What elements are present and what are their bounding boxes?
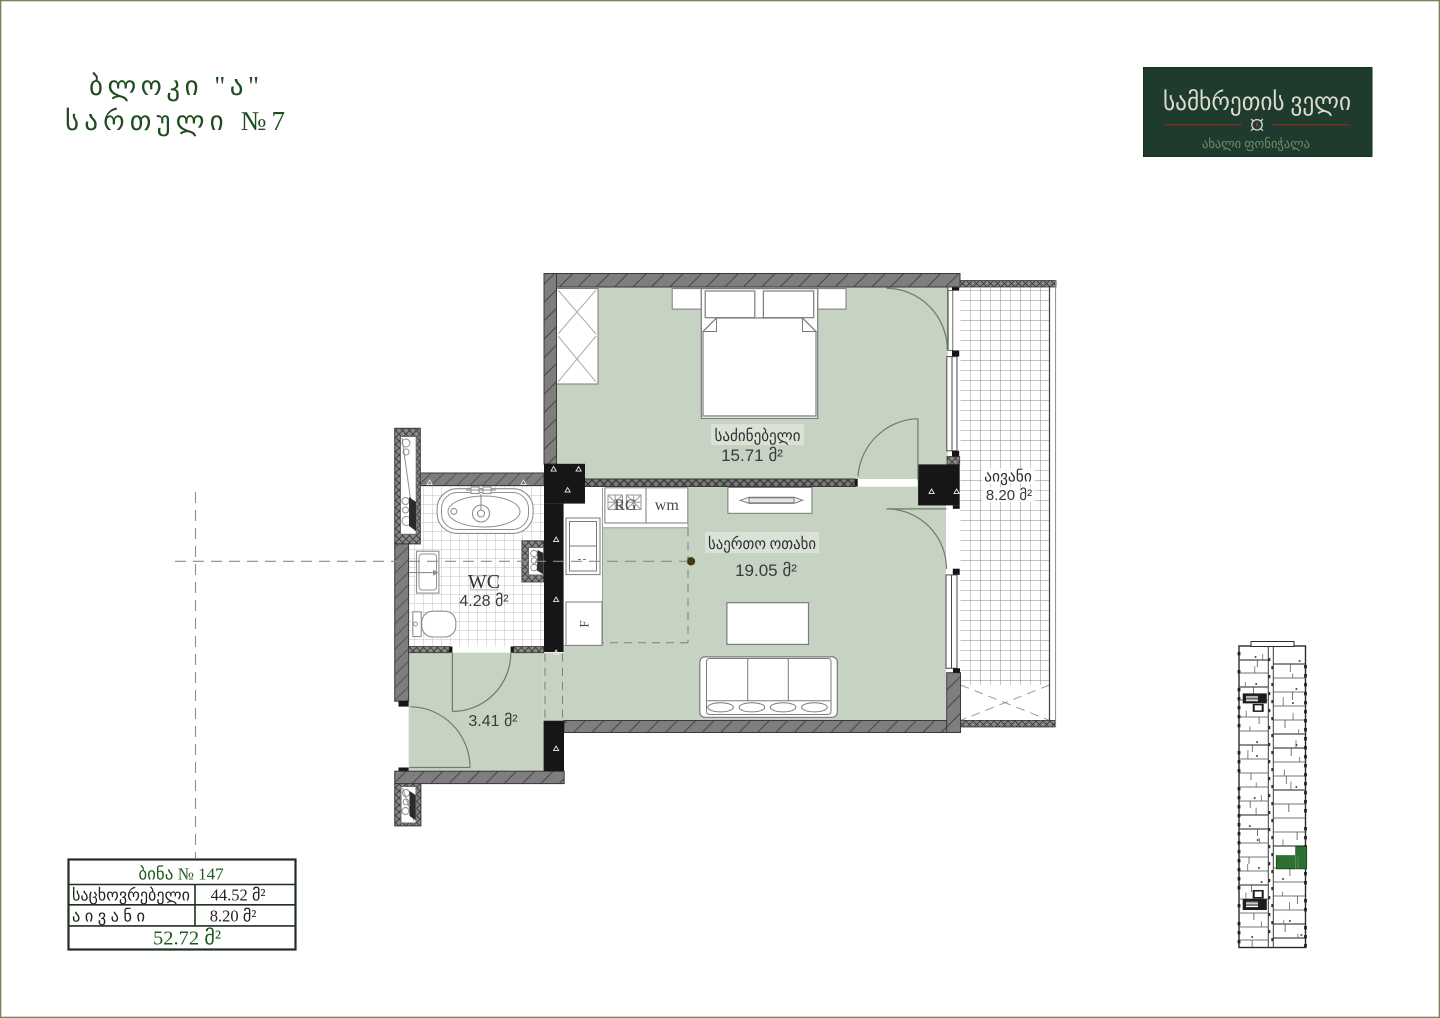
svg-text:ბლოკი "ა": ბლოკი "ა" xyxy=(89,71,259,102)
svg-text:F: F xyxy=(577,620,592,627)
svg-text:8.20 მ²: 8.20 მ² xyxy=(210,907,257,926)
svg-text:აივანი: აივანი xyxy=(984,468,1032,486)
svg-text:საერთო ოთახი: საერთო ოთახი xyxy=(708,535,816,553)
svg-text:3.41 მ²: 3.41 მ² xyxy=(468,712,518,730)
svg-text:8.20 მ²: 8.20 მ² xyxy=(986,487,1032,504)
svg-text:15.71 მ²: 15.71 მ² xyxy=(721,446,783,465)
svg-text:4.28 მ²: 4.28 მ² xyxy=(459,592,509,610)
svg-text:RG: RG xyxy=(614,497,637,514)
svg-text:საძინებელი: საძინებელი xyxy=(715,427,801,445)
svg-text:სამხრეთის ველი: სამხრეთის ველი xyxy=(1163,89,1351,116)
svg-text:საცხოვრებელი: საცხოვრებელი xyxy=(72,886,190,906)
svg-text:WC: WC xyxy=(468,571,500,593)
svg-text:19.05 მ²: 19.05 მ² xyxy=(735,561,797,580)
svg-text:სართული №7: სართული №7 xyxy=(65,106,285,137)
svg-text:52.72 მ²: 52.72 მ² xyxy=(153,927,221,950)
svg-text:ბინა № 147: ბინა № 147 xyxy=(138,865,224,884)
svg-text:ახალი ფონიჭალა: ახალი ფონიჭალა xyxy=(1202,136,1310,152)
svg-text:44.52 მ²: 44.52 მ² xyxy=(211,886,266,905)
svg-text:wm: wm xyxy=(655,497,680,514)
